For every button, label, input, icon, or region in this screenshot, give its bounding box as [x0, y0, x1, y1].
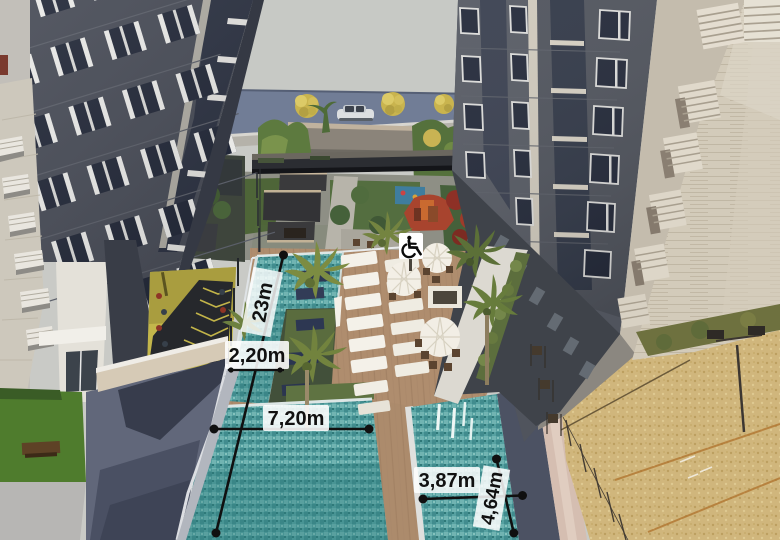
svg-text:2,20m: 2,20m [229, 345, 286, 367]
svg-text:7,20m: 7,20m [268, 408, 325, 430]
svg-text:3,87m: 3,87m [419, 470, 476, 492]
